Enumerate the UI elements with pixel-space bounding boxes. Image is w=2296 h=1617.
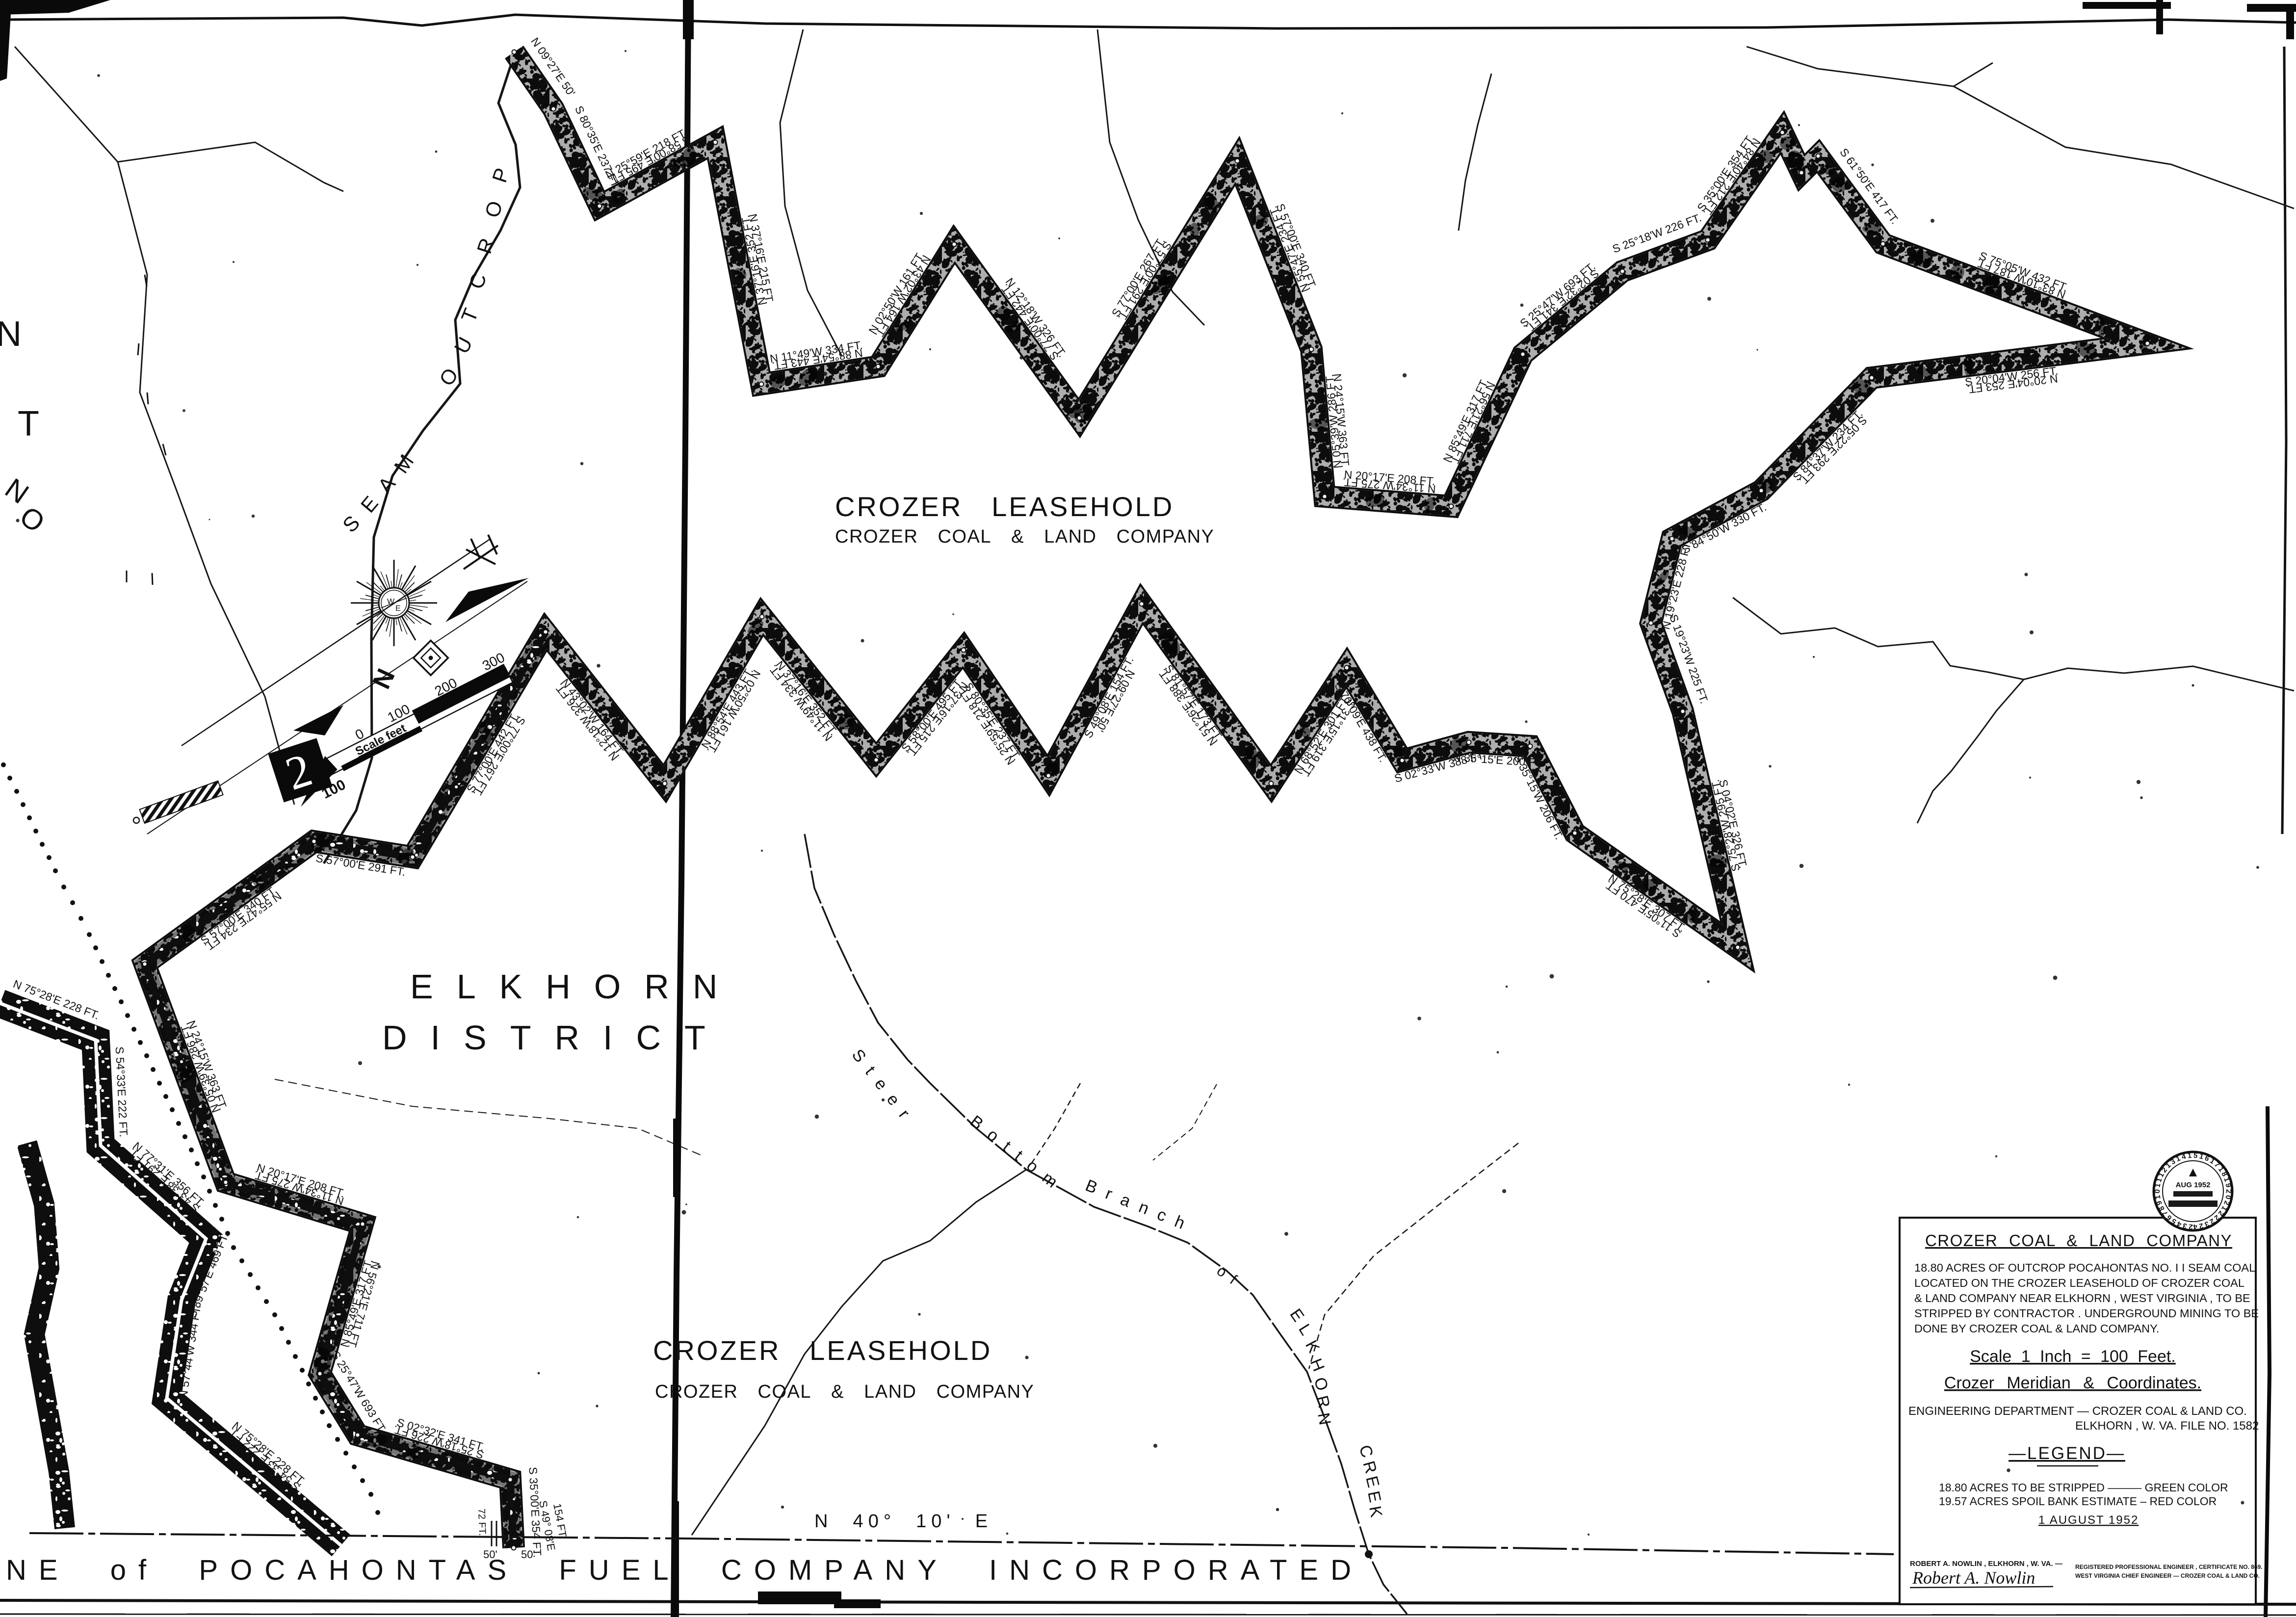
svg-text:18.80 ACRES TO BE STRIPPED: 18.80 ACRES TO BE STRIPPED ——— GREEN COL… — [1939, 1481, 2228, 1494]
svg-text:ELKHORN: ELKHORN — [410, 967, 741, 1006]
svg-text:ROBERT A. NOWLIN , ELKHORN , W: ROBERT A. NOWLIN , ELKHORN , W. VA. — — [1910, 1560, 2062, 1568]
svg-text:18.80 ACRES OF OUTCROP POC: 18.80 ACRES OF OUTCROP POCAHONTAS NO. I … — [1914, 1261, 2255, 1274]
svg-text:DISTRICT: DISTRICT — [382, 1018, 729, 1057]
svg-text:W: W — [387, 598, 395, 606]
svg-text:REGISTERED PROFESSIONAL EN: REGISTERED PROFESSIONAL ENGINEER , CERTI… — [2075, 1564, 2263, 1570]
svg-text:CROZER COAL & LAND COMPANY: CROZER COAL & LAND COMPANY — [835, 526, 1214, 547]
svg-text:Crozer Meridian & Coordin: Crozer Meridian & Coordinates. — [1944, 1374, 2201, 1392]
svg-text:19.57 ACRES SPOIL BANK EST: 19.57 ACRES SPOIL BANK ESTIMATE – RED CO… — [1939, 1495, 2217, 1508]
svg-text:50': 50' — [521, 1548, 535, 1561]
svg-text:CROZER COAL & LAND COMPANY: CROZER COAL & LAND COMPANY — [1925, 1231, 2232, 1250]
svg-text:LOCATED ON THE CROZER LEAS: LOCATED ON THE CROZER LEASEHOLD OF CROZE… — [1914, 1277, 2244, 1289]
svg-text:E: E — [395, 604, 401, 613]
svg-text:1 AUGUST 1952: 1 AUGUST 1952 — [2038, 1513, 2139, 1527]
svg-text:WEST VIRGINIA CHIEF ENGINE: WEST VIRGINIA CHIEF ENGINEER — CROZER CO… — [2075, 1572, 2260, 1579]
svg-text:T: T — [18, 404, 39, 443]
svg-text:N 40° 10' E: N 40° 10' E — [814, 1511, 992, 1532]
svg-text:Robert A. Nowlin: Robert A. Nowlin — [1912, 1568, 2035, 1588]
svg-text:CROZER LEASEHOLD: CROZER LEASEHOLD — [653, 1335, 992, 1366]
svg-text:ENGINEERING DEPARTMENT — CRO: ENGINEERING DEPARTMENT — CROZER COAL & L… — [1908, 1405, 2247, 1418]
svg-text:N: N — [0, 314, 22, 354]
svg-text:ELKHORN , W. VA. FILE NO. 15: ELKHORN , W. VA. FILE NO. 1582 — [2075, 1419, 2259, 1433]
svg-text:72 FT.: 72 FT. — [476, 1508, 488, 1536]
svg-text:—LEGEND—: —LEGEND— — [2009, 1444, 2125, 1463]
svg-text:STRIPPED BY CONTRACTOR . UN: STRIPPED BY CONTRACTOR . UNDERGROUND MIN… — [1914, 1307, 2259, 1320]
svg-text:50': 50' — [483, 1548, 497, 1561]
svg-text:& LAND COMPANY NEAR ELKHOR: & LAND COMPANY NEAR ELKHORN , WEST VIRGI… — [1914, 1292, 2250, 1304]
svg-text:NE of POCAHONTAS FUEL COMP: NE of POCAHONTAS FUEL COMPANY INCORPORAT… — [6, 1554, 1363, 1586]
svg-text:CROZER COAL & LAND COMPANY: CROZER COAL & LAND COMPANY — [655, 1382, 1034, 1402]
svg-text:AUG 1952: AUG 1952 — [2176, 1181, 2211, 1189]
svg-text:CROZER LEASEHOLD: CROZER LEASEHOLD — [835, 491, 1174, 522]
svg-text:Scale 1 Inch = 100 Feet.: Scale 1 Inch = 100 Feet. — [1970, 1347, 2176, 1366]
svg-text:DONE BY CROZER COAL & LAN: DONE BY CROZER COAL & LAND COMPANY. — [1914, 1322, 2159, 1335]
